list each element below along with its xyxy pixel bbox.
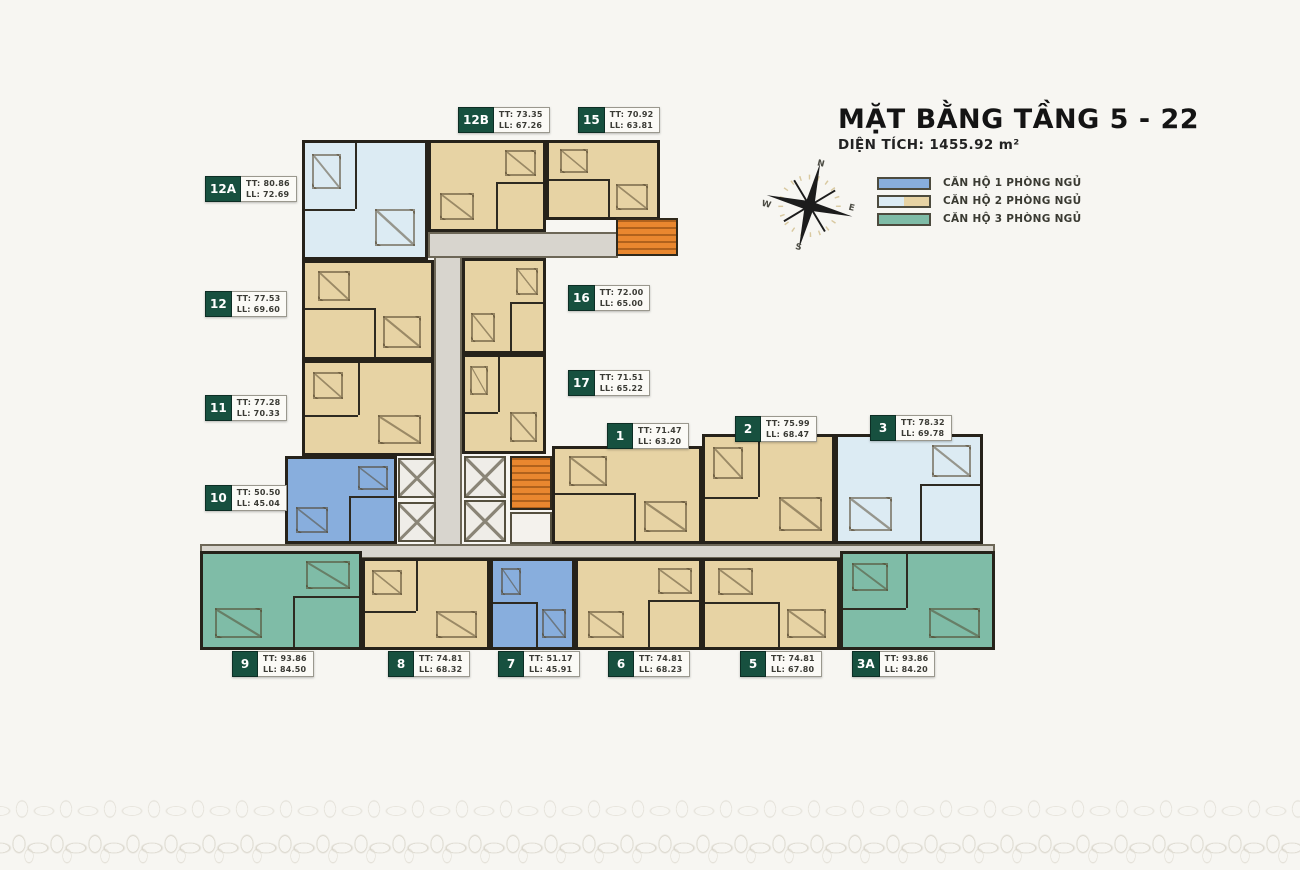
unit-label-10: 10 TT: 50.50LL: 45.04: [205, 485, 287, 511]
unit-ll-value: LL: 69.60: [237, 304, 281, 315]
unit-tt-value: TT: 78.32: [901, 417, 945, 428]
interior-wall: [465, 412, 498, 414]
unit-areas: TT: 74.81LL: 68.23: [634, 651, 690, 677]
furniture-outline: [383, 316, 421, 348]
unit-number-badge: 12B: [458, 107, 494, 133]
unit-ll-value: LL: 68.32: [419, 664, 463, 675]
unit-number-badge: 10: [205, 485, 232, 511]
unit-areas: TT: 77.28LL: 70.33: [232, 395, 288, 421]
unit-ll-value: LL: 65.00: [600, 298, 644, 309]
unit-tt-value: TT: 77.28: [237, 397, 281, 408]
utility-room: [510, 512, 552, 544]
interior-wall: [349, 496, 394, 498]
furniture-outline: [440, 193, 474, 221]
staircase-top: [616, 218, 678, 256]
furniture-outline: [436, 611, 477, 639]
unit-17: [462, 354, 546, 454]
unit-label-17: 17 TT: 71.51LL: 65.22: [568, 370, 650, 396]
unit-label-6: 6 TT: 74.81LL: 68.23: [608, 651, 690, 677]
furniture-outline: [501, 568, 522, 596]
interior-wall: [634, 493, 636, 541]
unit-areas: TT: 74.81LL: 67.80: [766, 651, 822, 677]
unit-number-badge: 16: [568, 285, 595, 311]
unit-label-9: 9 TT: 93.86LL: 84.50: [232, 651, 314, 677]
compass-n-label: N: [816, 158, 825, 169]
unit-ll-value: LL: 72.69: [246, 189, 290, 200]
furniture-outline: [644, 501, 687, 532]
furniture-outline: [560, 149, 588, 173]
interior-wall: [498, 357, 500, 412]
furniture-outline: [375, 209, 416, 245]
unit-tt-value: TT: 73.35: [499, 109, 543, 120]
furniture-outline: [312, 154, 341, 188]
furniture-outline: [588, 611, 624, 639]
interior-wall: [510, 302, 543, 304]
legend-swatch-3br: [877, 213, 931, 226]
unit-label-12: 12 TT: 77.53LL: 69.60: [205, 291, 287, 317]
elevator-4: [464, 500, 506, 542]
unit-3a: [840, 551, 995, 650]
interior-wall: [293, 596, 359, 598]
furniture-outline: [516, 268, 538, 295]
interior-wall: [536, 602, 538, 647]
page-subtitle-area: DIỆN TÍCH: 1455.92 m²: [838, 137, 1199, 153]
unit-ll-value: LL: 84.20: [885, 664, 929, 675]
unit-16: [462, 258, 546, 354]
interior-wall: [648, 600, 650, 647]
legend-label-1br: CĂN HỘ 1 PHÒNG NGỦ: [943, 177, 1081, 189]
furniture-outline: [306, 561, 350, 589]
watermark-pattern-top: [0, 792, 1300, 826]
unit-tt-value: TT: 51.17: [529, 653, 573, 664]
unit-areas: TT: 74.81LL: 68.32: [414, 651, 470, 677]
unit-label-1: 1 TT: 71.47LL: 63.20: [607, 423, 689, 449]
unit-9: [200, 551, 362, 650]
unit-number-badge: 12A: [205, 176, 241, 202]
interior-wall: [705, 497, 758, 499]
furniture-outline: [616, 184, 648, 209]
unit-areas: TT: 75.99LL: 68.47: [761, 416, 817, 442]
staircase-core: [510, 456, 552, 510]
floorplan-canvas: MẶT BẰNG TẦNG 5 - 22 DIỆN TÍCH: 1455.92 …: [0, 0, 1300, 870]
unit-12: [302, 260, 434, 360]
furniture-outline: [718, 568, 752, 596]
unit-ll-value: LL: 63.81: [610, 120, 654, 131]
unit-number-badge: 6: [608, 651, 634, 677]
unit-number-badge: 3A: [852, 651, 880, 677]
unit-ll-value: LL: 63.20: [638, 436, 682, 447]
unit-number-badge: 2: [735, 416, 761, 442]
compass-e-label: E: [847, 203, 855, 214]
unit-number-badge: 3: [870, 415, 896, 441]
page-title: MẶT BẰNG TẦNG 5 - 22: [838, 106, 1199, 134]
unit-areas: TT: 51.17LL: 45.91: [524, 651, 580, 677]
unit-number-badge: 9: [232, 651, 258, 677]
furniture-outline: [296, 507, 328, 533]
furniture-outline: [372, 570, 401, 596]
unit-15: [546, 140, 660, 220]
unit-6: [575, 558, 702, 650]
unit-ll-value: LL: 68.23: [639, 664, 683, 675]
interior-wall: [555, 493, 634, 495]
interior-wall: [355, 143, 357, 209]
unit-tt-value: TT: 77.53: [237, 293, 281, 304]
title-block: MẶT BẰNG TẦNG 5 - 22 DIỆN TÍCH: 1455.92 …: [838, 106, 1199, 153]
interior-wall: [365, 611, 416, 613]
furniture-outline: [470, 366, 489, 394]
interior-wall: [496, 182, 543, 184]
furniture-outline: [358, 466, 388, 491]
unit-ll-value: LL: 65.22: [600, 383, 644, 394]
unit-areas: TT: 70.92LL: 63.81: [605, 107, 661, 133]
unit-number-badge: 5: [740, 651, 766, 677]
unit-5: [702, 558, 840, 650]
corridor-top: [428, 232, 618, 258]
unit-ll-value: LL: 68.47: [766, 429, 810, 440]
unit-label-3: 3 TT: 78.32LL: 69.78: [870, 415, 952, 441]
unit-2: [702, 434, 835, 544]
interior-wall: [510, 302, 512, 352]
unit-tt-value: TT: 74.81: [419, 653, 463, 664]
interior-wall: [293, 596, 295, 647]
unit-areas: TT: 50.50LL: 45.04: [232, 485, 288, 511]
unit-12a: [302, 140, 428, 260]
unit-ll-value: LL: 45.91: [529, 664, 573, 675]
compass-w-label: W: [760, 199, 772, 211]
legend-row-2br: CĂN HỘ 2 PHÒNG NGỦ: [877, 194, 1081, 208]
unit-areas: TT: 80.86LL: 72.69: [241, 176, 297, 202]
legend-swatch-2br-tan: [904, 197, 929, 206]
furniture-outline: [849, 497, 892, 530]
furniture-outline: [787, 609, 827, 638]
unit-number-badge: 11: [205, 395, 232, 421]
compass-rose-icon: N E S W: [752, 146, 868, 262]
legend: CĂN HỘ 1 PHÒNG NGỦ CĂN HỘ 2 PHÒNG NGỦ CĂ…: [877, 176, 1081, 230]
legend-label-3br: CĂN HỘ 3 PHÒNG NGỦ: [943, 213, 1081, 225]
unit-number-badge: 12: [205, 291, 232, 317]
interior-wall: [496, 182, 498, 229]
unit-number-badge: 8: [388, 651, 414, 677]
furniture-outline: [779, 497, 822, 530]
interior-wall: [920, 484, 922, 541]
unit-tt-value: TT: 71.47: [638, 425, 682, 436]
interior-wall: [906, 554, 908, 608]
legend-swatch-1br: [877, 177, 931, 190]
furniture-outline: [658, 568, 692, 594]
furniture-outline: [313, 372, 343, 399]
furniture-outline: [542, 609, 566, 638]
unit-areas: TT: 71.51LL: 65.22: [595, 370, 651, 396]
legend-swatch-3br-color: [879, 215, 929, 224]
unit-ll-value: LL: 84.50: [263, 664, 307, 675]
unit-areas: TT: 71.47LL: 63.20: [633, 423, 689, 449]
interior-wall: [305, 209, 355, 211]
unit-areas: TT: 72.00LL: 65.00: [595, 285, 651, 311]
unit-tt-value: TT: 80.86: [246, 178, 290, 189]
unit-8: [362, 558, 490, 650]
elevator-1: [398, 458, 436, 498]
unit-number-badge: 15: [578, 107, 605, 133]
interior-wall: [608, 179, 610, 217]
watermark-pattern-bottom: [0, 824, 1300, 864]
unit-tt-value: TT: 71.51: [600, 372, 644, 383]
elevator-3: [464, 456, 506, 498]
interior-wall: [778, 602, 780, 647]
unit-ll-value: LL: 70.33: [237, 408, 281, 419]
unit-tt-value: TT: 74.81: [771, 653, 815, 664]
elevator-2: [398, 502, 436, 542]
interior-wall: [305, 308, 374, 310]
legend-swatch-1br-color: [879, 179, 929, 188]
unit-tt-value: TT: 74.81: [639, 653, 683, 664]
interior-wall: [358, 363, 360, 415]
interior-wall: [648, 600, 699, 602]
interior-wall: [705, 602, 778, 604]
unit-areas: TT: 78.32LL: 69.78: [896, 415, 952, 441]
unit-number-badge: 7: [498, 651, 524, 677]
unit-label-7: 7 TT: 51.17LL: 45.91: [498, 651, 580, 677]
furniture-outline: [713, 447, 743, 478]
unit-tt-value: TT: 72.00: [600, 287, 644, 298]
furniture-outline: [215, 608, 262, 638]
unit-ll-value: LL: 67.26: [499, 120, 543, 131]
furniture-outline: [569, 456, 606, 485]
furniture-outline: [510, 412, 537, 442]
unit-tt-value: TT: 93.86: [885, 653, 929, 664]
interior-wall: [843, 608, 906, 610]
unit-tt-value: TT: 70.92: [610, 109, 654, 120]
legend-row-3br: CĂN HỘ 3 PHÒNG NGỦ: [877, 212, 1081, 226]
legend-label-2br: CĂN HỘ 2 PHÒNG NGỦ: [943, 195, 1081, 207]
unit-ll-value: LL: 45.04: [237, 498, 281, 509]
furniture-outline: [852, 563, 888, 591]
unit-areas: TT: 77.53LL: 69.60: [232, 291, 288, 317]
compass-s-label: S: [794, 242, 802, 253]
unit-label-11: 11 TT: 77.28LL: 70.33: [205, 395, 287, 421]
unit-12b: [428, 140, 546, 232]
unit-ll-value: LL: 69.78: [901, 428, 945, 439]
unit-1: [552, 446, 702, 544]
interior-wall: [920, 484, 980, 486]
unit-tt-value: TT: 50.50: [237, 487, 281, 498]
unit-7: [490, 558, 575, 650]
interior-wall: [416, 561, 418, 611]
unit-label-3a: 3A TT: 93.86LL: 84.20: [852, 651, 935, 677]
unit-ll-value: LL: 67.80: [771, 664, 815, 675]
furniture-outline: [378, 415, 421, 444]
unit-number-badge: 1: [607, 423, 633, 449]
unit-label-8: 8 TT: 74.81LL: 68.32: [388, 651, 470, 677]
unit-label-12a: 12A TT: 80.86LL: 72.69: [205, 176, 297, 202]
furniture-outline: [471, 313, 494, 342]
legend-swatch-2br-blue: [879, 197, 904, 206]
unit-label-16: 16 TT: 72.00LL: 65.00: [568, 285, 650, 311]
unit-3: [835, 434, 983, 544]
furniture-outline: [929, 608, 980, 638]
interior-wall: [305, 415, 358, 417]
unit-tt-value: TT: 75.99: [766, 418, 810, 429]
interior-wall: [349, 496, 351, 541]
unit-tt-value: TT: 93.86: [263, 653, 307, 664]
furniture-outline: [505, 150, 536, 176]
legend-swatch-2br: [877, 195, 931, 208]
furniture-outline: [318, 271, 351, 301]
unit-10: [285, 456, 397, 544]
unit-areas: TT: 93.86LL: 84.50: [258, 651, 314, 677]
unit-areas: TT: 73.35LL: 67.26: [494, 107, 550, 133]
unit-areas: TT: 93.86LL: 84.20: [880, 651, 936, 677]
unit-label-5: 5 TT: 74.81LL: 67.80: [740, 651, 822, 677]
unit-label-15: 15 TT: 70.92LL: 63.81: [578, 107, 660, 133]
interior-wall: [493, 602, 536, 604]
interior-wall: [758, 437, 760, 497]
unit-number-badge: 17: [568, 370, 595, 396]
legend-row-1br: CĂN HỘ 1 PHÒNG NGỦ: [877, 176, 1081, 190]
unit-label-12b: 12B TT: 73.35LL: 67.26: [458, 107, 550, 133]
corridor-vertical: [434, 256, 462, 546]
interior-wall: [374, 308, 376, 357]
unit-11: [302, 360, 434, 456]
furniture-outline: [932, 445, 972, 476]
unit-label-2: 2 TT: 75.99LL: 68.47: [735, 416, 817, 442]
interior-wall: [549, 179, 608, 181]
